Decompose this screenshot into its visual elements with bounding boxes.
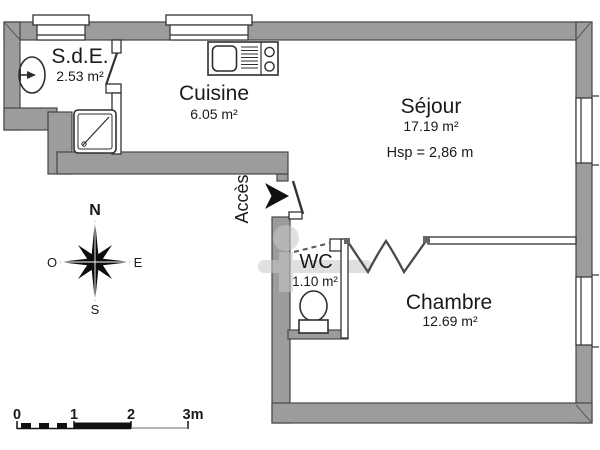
- window-cuisine: [166, 15, 252, 40]
- compass-o: O: [47, 255, 57, 270]
- folding-door-cap-left: [344, 238, 350, 244]
- compass-n: N: [89, 202, 101, 219]
- label-sejour: Séjour: [401, 95, 462, 118]
- kitchen-sink: [213, 46, 237, 71]
- toilet-icon: [299, 291, 328, 333]
- ceiling-height: Hsp = 2,86 m: [387, 145, 474, 161]
- window-chambre: [576, 275, 599, 347]
- floor-plan-svg: Accès S.d.E. 2.53 m² Cuisine 6.05 m² Séj…: [0, 0, 600, 450]
- washbasin-icon: [19, 57, 45, 93]
- area-sejour: 17.19 m²: [403, 118, 459, 134]
- sde-partition-stub: [112, 40, 121, 53]
- kitchen-sink-hob-icon: [208, 42, 278, 75]
- area-chambre: 12.69 m²: [422, 313, 478, 329]
- sejour-chambre-partition: [428, 237, 576, 244]
- partitions-and-doors: [106, 40, 576, 338]
- label-chambre: Chambre: [406, 291, 492, 314]
- toilet-bowl: [300, 291, 327, 321]
- scale-solid-segment: [74, 423, 131, 429]
- shower-tray-icon: [74, 110, 116, 153]
- scale-3m: 3m: [183, 407, 204, 423]
- wc-front-stub: [330, 239, 341, 251]
- scale-dash: [39, 423, 49, 429]
- toilet-tank: [299, 320, 328, 333]
- scale-dash: [21, 423, 31, 429]
- floor-plan: Accès S.d.E. 2.53 m² Cuisine 6.05 m² Séj…: [0, 0, 600, 450]
- entrance-door-leaf: [293, 181, 303, 214]
- bottom-wall: [272, 403, 592, 423]
- label-wc: WC: [299, 251, 332, 273]
- scale-dash: [57, 423, 67, 429]
- window-frame: [166, 15, 252, 25]
- area-sde: 2.53 m²: [56, 68, 104, 84]
- scale-1: 1: [70, 407, 78, 423]
- entrance-label: Accès: [232, 174, 252, 223]
- window-glazing: [576, 277, 592, 345]
- watermark-circle: [273, 225, 299, 251]
- scale-2: 2: [127, 407, 135, 423]
- wc-right-wall: [341, 239, 348, 338]
- window-sejour: [576, 96, 599, 165]
- entrance-door-jamb: [289, 212, 302, 219]
- door-jamb-top: [277, 174, 288, 181]
- area-wc: 1.10 m²: [292, 274, 338, 289]
- compass-s: S: [91, 302, 100, 317]
- right-wall: [576, 22, 592, 423]
- kitchen-bottom-wall: [57, 152, 288, 174]
- scale-bar-icon: 0 1 2 3m: [13, 407, 204, 429]
- window-glazing: [37, 25, 85, 40]
- compass-rose-icon: N E S O: [47, 202, 143, 317]
- window-sde: [33, 15, 89, 40]
- window-glazing: [170, 25, 248, 40]
- top-wall: [4, 22, 591, 40]
- entrance-arrow-icon: [265, 183, 289, 209]
- label-cuisine: Cuisine: [179, 82, 249, 105]
- window-glazing: [576, 98, 592, 163]
- compass-e: E: [134, 255, 143, 270]
- drainer-lines: [241, 47, 258, 68]
- sde-partition-corner: [106, 84, 121, 93]
- area-cuisine: 6.05 m²: [190, 106, 238, 122]
- scale-0: 0: [13, 407, 21, 423]
- label-sde: S.d.E.: [51, 45, 108, 68]
- window-frame: [33, 15, 89, 25]
- entrance-marker: Accès: [232, 174, 289, 223]
- folding-door-cap-right: [423, 236, 430, 243]
